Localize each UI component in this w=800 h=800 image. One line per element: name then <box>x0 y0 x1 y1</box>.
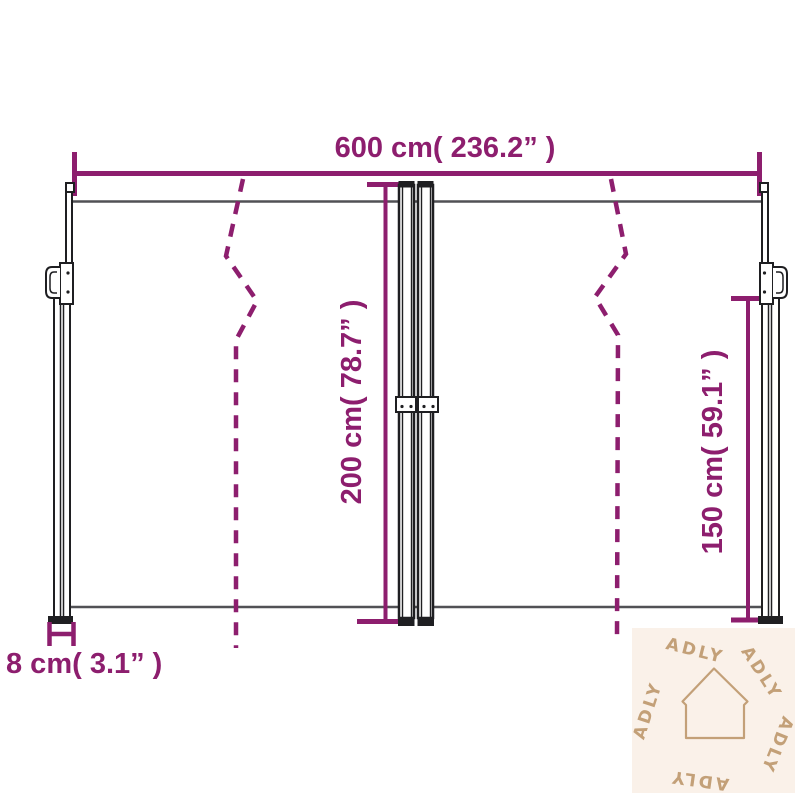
left-pole-body <box>54 270 70 618</box>
center-pole-connector-plate <box>418 397 438 412</box>
center-pole-top-cap <box>399 181 415 188</box>
screw-dot <box>409 405 412 408</box>
fold-mark-left <box>226 179 257 648</box>
height-center-dim-label: 200 cm( 78.7” ) <box>336 300 368 505</box>
center-pole-foot <box>398 617 415 626</box>
dim-pole-depth: 8 cm( 3.1” ) <box>6 622 162 680</box>
left-pole-mount-plate <box>60 263 73 304</box>
dim-height-right: 150 cm( 59.1” ) <box>697 298 761 620</box>
screw-dot <box>66 290 69 293</box>
right-pole-upper-post <box>762 190 768 272</box>
dim-height-center: 200 cm( 78.7” ) <box>336 184 399 622</box>
right-pole-mount-plate <box>760 263 773 304</box>
screw-dot <box>431 405 434 408</box>
diagram-canvas: 600 cm( 236.2” ) 200 cm( 78.7” ) 150 cm(… <box>0 0 800 800</box>
awning-dimension-diagram: 600 cm( 236.2” ) 200 cm( 78.7” ) 150 cm(… <box>0 0 800 800</box>
fold-mark-right <box>595 179 626 636</box>
screw-dot <box>763 290 766 293</box>
height-right-dim-label: 150 cm( 59.1” ) <box>697 350 729 555</box>
center-pole <box>396 181 438 626</box>
screw-dot <box>422 405 425 408</box>
screw-dot <box>66 271 69 274</box>
screw-dot <box>763 271 766 274</box>
screw-dot <box>400 405 403 408</box>
brand-watermark: ADLY ADLY ADLY ADLY ADLY <box>629 628 797 794</box>
right-pole-foot <box>758 616 783 624</box>
right-pole-body <box>762 270 779 618</box>
right-pole-top-cap <box>760 183 768 192</box>
pole-depth-dim-label: 8 cm( 3.1” ) <box>6 648 162 680</box>
center-pole-top-cap <box>418 181 434 188</box>
right-pole <box>758 183 787 624</box>
center-pole-connector-plate <box>396 397 416 412</box>
left-pole <box>46 183 74 624</box>
width-dim-label: 600 cm( 236.2” ) <box>335 132 556 164</box>
center-pole-foot <box>418 617 435 626</box>
left-pole-top-cap <box>66 183 74 192</box>
left-pole-upper-post <box>66 190 72 272</box>
